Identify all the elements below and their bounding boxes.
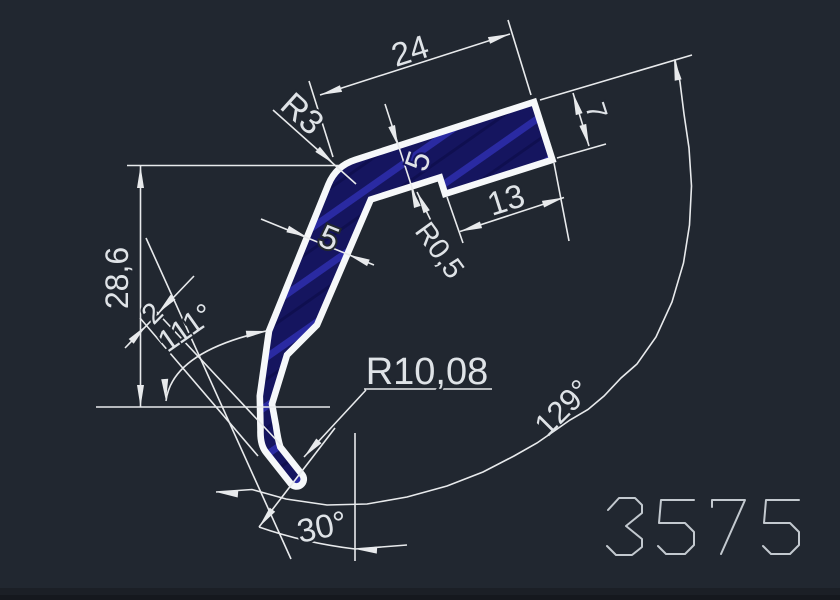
svg-text:R10,08: R10,08 [366,351,489,393]
svg-text:28,6: 28,6 [99,247,135,309]
